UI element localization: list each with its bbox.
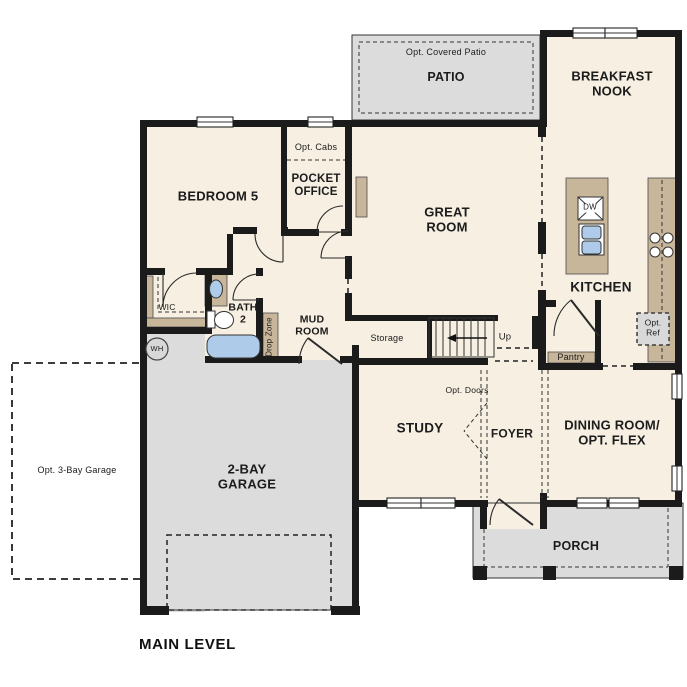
great-room-label: GREAT ROOM [402, 205, 492, 234]
pocket-office-label: POCKET OFFICE [279, 173, 353, 199]
opt-ref-label: Opt. Ref [638, 318, 668, 337]
dining-room-label: DINING ROOM/ OPT. FLEX [548, 418, 676, 447]
pantry-label: Pantry [557, 352, 584, 362]
storage-label: Storage [371, 333, 404, 343]
patio-label: PATIO [427, 70, 464, 84]
floor-plan: Opt. Covered Patio PATIO BREAKFAST NOOK … [0, 0, 687, 687]
floor-plan-graphics [0, 0, 687, 687]
dishwasher-label: DW [582, 204, 598, 213]
bath2-label: BATH 2 [225, 302, 261, 326]
drop-zone-label: Drop Zone [266, 317, 275, 357]
stairs-up-label: Up [499, 333, 512, 344]
plan-title: MAIN LEVEL [139, 637, 236, 654]
wic-label: WIC [158, 303, 175, 313]
water-heater-label: WH [151, 345, 164, 353]
opt-garage-label: Opt. 3-Bay Garage [36, 465, 118, 475]
bedroom5-label: BEDROOM 5 [178, 190, 259, 205]
opt-doors-label: Opt. Doors [445, 386, 489, 396]
garage-label: 2-BAY GARAGE [211, 462, 283, 491]
study-label: STUDY [397, 420, 444, 435]
mud-room-label: MUD ROOM [284, 314, 340, 338]
opt-cabs-label: Opt. Cabs [295, 142, 337, 152]
kitchen-label: KITCHEN [570, 279, 631, 294]
foyer-label: FOYER [491, 427, 533, 440]
opt-covered-patio-label: Opt. Covered Patio [406, 47, 486, 57]
breakfast-nook-label: BREAKFAST NOOK [557, 69, 667, 98]
porch-label: PORCH [553, 539, 599, 553]
